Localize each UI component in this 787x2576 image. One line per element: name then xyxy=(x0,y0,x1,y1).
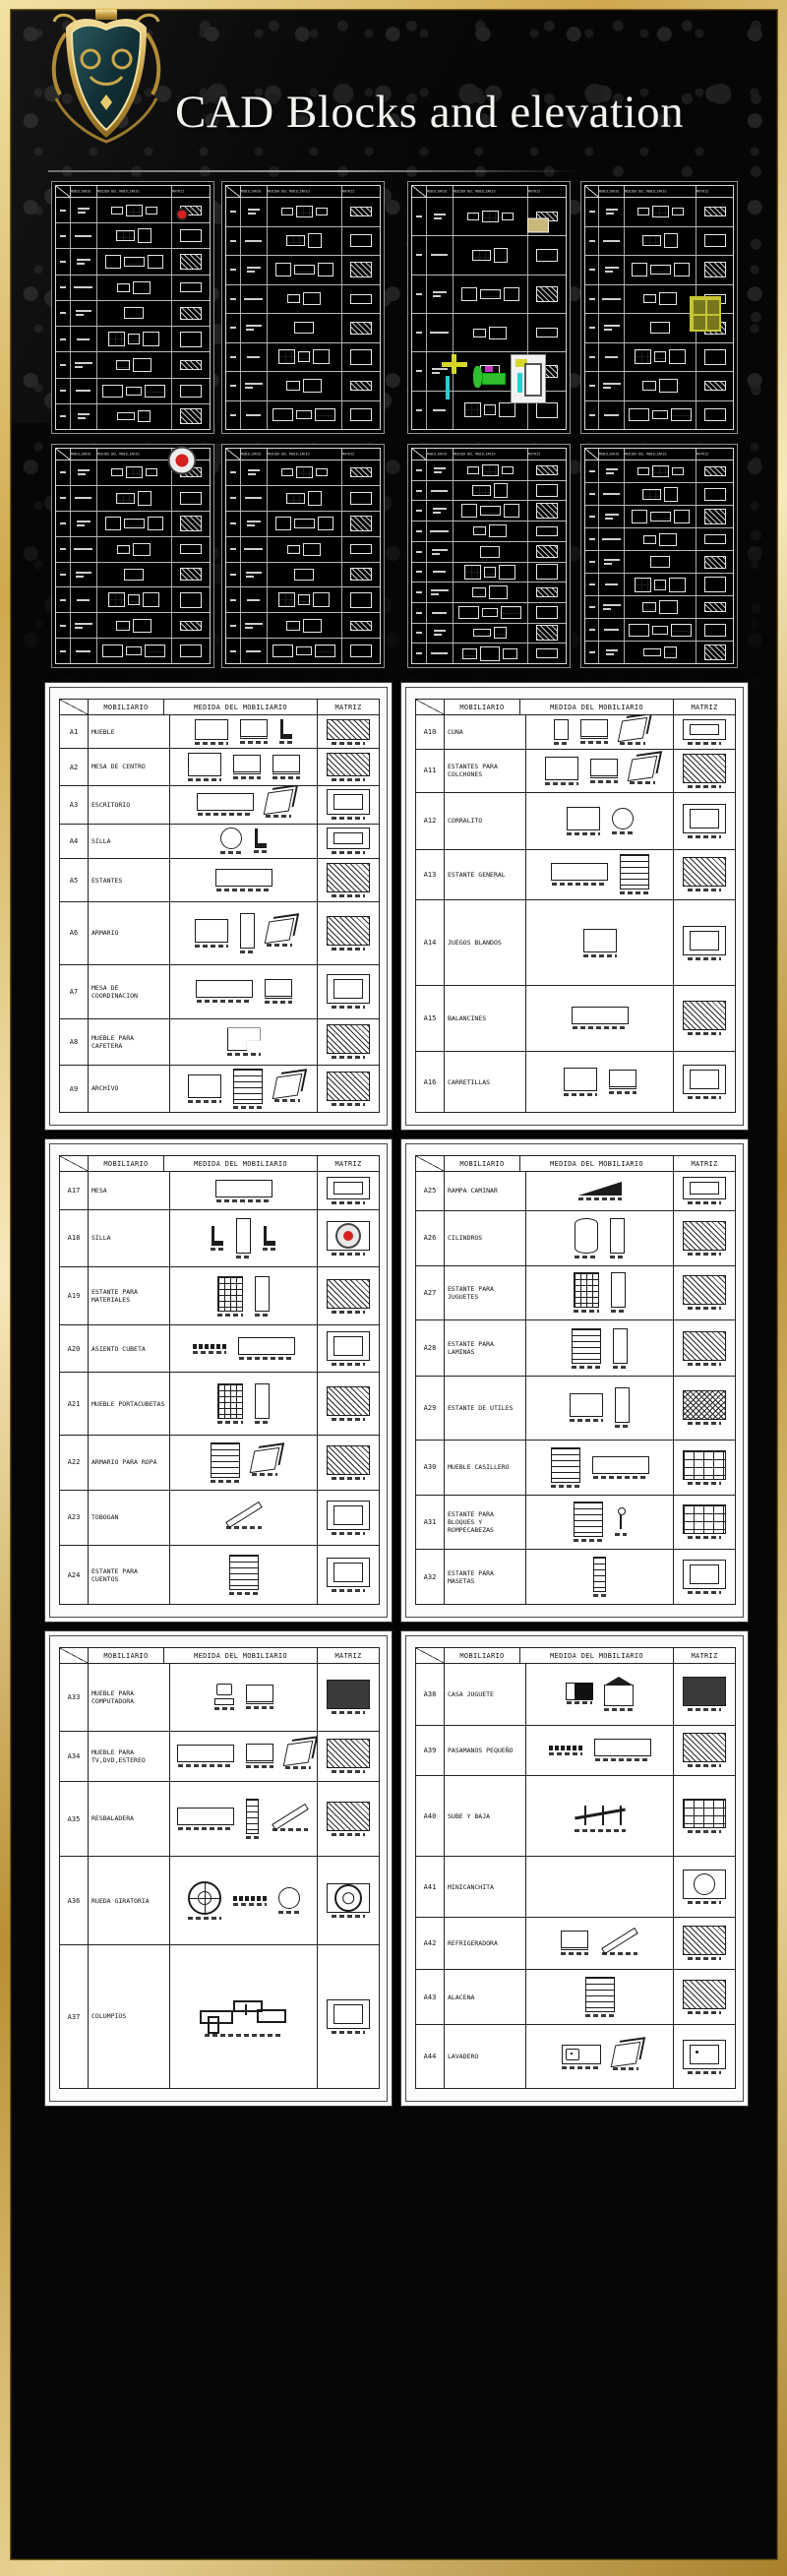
matrix-cell xyxy=(318,902,379,963)
drawing-wide xyxy=(551,863,608,881)
label-mark xyxy=(77,259,91,261)
drawing-front xyxy=(272,755,300,774)
id-mark xyxy=(60,415,66,417)
row-label-cell xyxy=(71,486,97,511)
matrix-drawing xyxy=(350,492,372,505)
matrix-box xyxy=(683,1390,726,1420)
furniture-drawing xyxy=(461,287,477,301)
matrix-cell xyxy=(528,563,566,583)
row-label: SILLA xyxy=(89,825,170,858)
cad-row xyxy=(226,512,380,537)
matrix-box xyxy=(327,1177,370,1199)
matrix-box xyxy=(683,857,726,887)
row-label-cell xyxy=(427,603,454,623)
furniture-drawing xyxy=(464,565,481,580)
label-mark xyxy=(78,417,86,419)
header-label: MEDIDA DEL MOBILIARIO xyxy=(625,453,666,457)
label-marks xyxy=(75,235,91,237)
dimension-label xyxy=(332,1833,365,1836)
dimension-drawings xyxy=(526,1441,674,1495)
dimension-label xyxy=(188,1917,221,1920)
spec-row: A29ESTANTE DE UTILES xyxy=(416,1377,735,1441)
label-marks xyxy=(244,548,263,550)
drawing-plan xyxy=(188,1074,221,1098)
furniture-drawing xyxy=(211,1442,240,1483)
matrix-drawing xyxy=(683,1504,726,1539)
row-id: A22 xyxy=(60,1436,89,1490)
dimension-drawings xyxy=(170,965,318,1018)
dimension-drawings-cell xyxy=(97,249,172,274)
row-label-cell xyxy=(241,613,268,638)
header-cell: MEDIDA DEL MOBILIARIO xyxy=(625,449,696,460)
furniture-drawing xyxy=(272,644,293,657)
spec-table: MOBILIARIOMEDIDA DEL MOBILIARIOMATRIZA33… xyxy=(59,1647,380,2089)
row-id-cell xyxy=(226,512,241,536)
furniture-drawing xyxy=(196,980,253,1003)
label-marks xyxy=(247,356,260,358)
furniture-drawing xyxy=(272,408,293,421)
dimension-drawings-cell xyxy=(454,542,528,562)
cad-row xyxy=(585,619,733,642)
furniture-drawing xyxy=(564,1068,597,1096)
furniture-drawing xyxy=(195,919,228,948)
label-mark xyxy=(248,213,256,215)
matrix-cell xyxy=(318,1066,379,1112)
row-label: CARRETILLAS xyxy=(445,1052,526,1112)
matrix-box xyxy=(327,863,370,892)
dimension-drawings xyxy=(526,900,674,984)
spec-row: A27ESTANTE PARA JUGUETES xyxy=(416,1266,735,1321)
furniture-drawing xyxy=(637,208,649,215)
furniture-drawing xyxy=(612,808,634,834)
label-mark xyxy=(433,508,447,510)
matrix-cell xyxy=(342,563,380,587)
drawing-cyl xyxy=(575,1218,598,1254)
matrix-cell xyxy=(696,506,733,527)
cad-table-header: MOBILIARIOMEDIDA DEL MOBILIARIOMATRIZ xyxy=(412,186,566,198)
matrix-cell xyxy=(172,486,210,511)
row-id-cell xyxy=(412,392,427,429)
label-mark xyxy=(603,383,621,385)
dimension-label xyxy=(267,944,292,947)
basin xyxy=(566,2049,579,2060)
header-medida: MEDIDA DEL MOBILIARIO xyxy=(164,1648,318,1663)
header-matriz: MATRIZ xyxy=(674,1156,735,1171)
row-id-cell xyxy=(56,327,71,351)
furniture-drawing xyxy=(294,265,315,275)
row-label: ESTANTE PARA LAMINAS xyxy=(445,1320,526,1376)
cad-row xyxy=(226,537,380,563)
furniture-drawing xyxy=(613,2044,638,2070)
row-label-cell xyxy=(71,404,97,429)
row-id: A10 xyxy=(416,715,445,749)
spec-row: A35RESBALADERA xyxy=(60,1782,379,1857)
drawing-iso xyxy=(627,756,657,781)
matrix-cell xyxy=(674,850,735,900)
id-mark xyxy=(416,332,422,334)
id-mark xyxy=(60,650,66,652)
dimension-drawings xyxy=(170,1945,318,2088)
drawing-circle xyxy=(220,828,242,849)
spec-table-header: MOBILIARIOMEDIDA DEL MOBILIARIOMATRIZ xyxy=(60,700,379,715)
drawing-shelf xyxy=(551,1447,580,1483)
id-mark xyxy=(60,471,66,473)
furniture-drawing xyxy=(473,629,491,637)
dot-block xyxy=(257,1896,261,1901)
header-cell: MEDIDA DEL MOBILIARIO xyxy=(97,186,172,197)
header-matriz: MATRIZ xyxy=(318,1648,379,1663)
matrix-cell xyxy=(342,198,380,226)
drawing-tall xyxy=(613,1328,628,1364)
furniture-drawing xyxy=(574,1502,603,1542)
dimension-label xyxy=(193,1351,226,1354)
label-mark xyxy=(606,653,614,655)
matrix-drawing xyxy=(180,568,202,581)
furniture-drawing xyxy=(126,466,143,478)
label-mark xyxy=(246,576,254,578)
drawing-circle xyxy=(278,1887,300,1909)
label-mark xyxy=(604,325,620,327)
row-label-cell xyxy=(241,372,268,400)
row-label-cell xyxy=(599,285,625,314)
matrix-cell xyxy=(172,512,210,536)
matrix-box xyxy=(683,1799,726,1828)
cad-sheet-thumbnail: MOBILIARIOMEDIDA DEL MOBILIARIOMATRIZ xyxy=(580,181,738,434)
header-label: MOBILIARIO xyxy=(427,190,447,194)
id-mark xyxy=(230,414,236,416)
cad-table-header: MOBILIARIOMEDIDA DEL MOBILIARIOMATRIZ xyxy=(226,449,380,460)
dimension-drawings xyxy=(170,1732,318,1781)
furniture-drawing xyxy=(480,506,501,516)
row-label: MUEBLE PARA CAFETERA xyxy=(89,1019,170,1065)
id-mark xyxy=(60,625,66,627)
matrix-drawing xyxy=(350,408,372,421)
label-mark xyxy=(247,271,255,273)
frame-post xyxy=(208,2016,219,2034)
row-id-cell xyxy=(56,613,71,638)
id-mark xyxy=(416,254,422,256)
row-id-cell xyxy=(585,314,599,342)
furniture-drawing xyxy=(654,351,666,362)
id-mark xyxy=(589,516,595,518)
header-label: MEDIDA DEL MOBILIARIO xyxy=(268,453,309,457)
label-mark xyxy=(247,521,261,522)
matrix-drawing xyxy=(180,360,202,370)
cad-row xyxy=(412,563,566,583)
dimension-label xyxy=(551,1485,580,1488)
matrix-drawing xyxy=(180,282,202,292)
drawing-shelf xyxy=(211,1442,240,1478)
inner-rect xyxy=(333,794,363,810)
dimension-label xyxy=(254,850,268,853)
crest-logo xyxy=(46,8,166,163)
label-marks xyxy=(77,521,91,526)
matrix-box xyxy=(683,804,726,833)
spec-row: A41MINICANCHITA xyxy=(416,1857,735,1918)
row-label-cell xyxy=(241,343,268,372)
cad-sheet-thumbnail: MOBILIARIOMEDIDA DEL MOBILIARIOMATRIZ xyxy=(580,444,738,668)
furniture-drawing xyxy=(303,379,322,393)
dimension-drawings xyxy=(170,825,318,858)
matrix-cell xyxy=(318,1782,379,1856)
matrix-drawing xyxy=(536,249,558,262)
label-marks xyxy=(245,240,262,242)
row-label-cell xyxy=(71,327,97,351)
furniture-drawing xyxy=(632,263,647,276)
dimension-drawings xyxy=(526,1320,674,1376)
header-cell: MEDIDA DEL MOBILIARIO xyxy=(454,449,528,460)
id-mark xyxy=(589,561,595,563)
cad-row xyxy=(56,198,210,223)
label-mark xyxy=(76,310,91,312)
furniture-drawing xyxy=(145,385,165,398)
row-id: A33 xyxy=(60,1664,89,1731)
furniture-drawing xyxy=(650,512,671,521)
header-cell: MOBILIARIO xyxy=(427,449,454,460)
matrix-drawing xyxy=(327,1739,370,1773)
matrix-drawing xyxy=(683,1390,726,1425)
furniture-drawing xyxy=(281,468,293,476)
furniture-drawing xyxy=(652,626,668,635)
drawing-iso xyxy=(282,1741,313,1766)
header-mobiliario: MOBILIARIO xyxy=(445,1156,520,1171)
dimension-drawings-cell xyxy=(454,481,528,501)
inner-rect xyxy=(333,1336,363,1356)
matrix-drawing xyxy=(350,621,372,631)
dimension-label xyxy=(688,889,721,891)
header-cell: MEDIDA DEL MOBILIARIO xyxy=(268,449,342,460)
row-id: A18 xyxy=(60,1210,89,1266)
spec-row: A38CASA JUGUETE xyxy=(416,1664,735,1726)
matrix-drawing xyxy=(683,1450,726,1485)
label-mark xyxy=(433,512,441,514)
inner-rect xyxy=(690,1070,719,1089)
id-mark xyxy=(230,599,236,601)
drawing-sink xyxy=(562,2045,601,2064)
spec-table: MOBILIARIOMEDIDA DEL MOBILIARIOMATRIZA17… xyxy=(59,1155,380,1605)
furniture-drawing xyxy=(128,594,140,605)
green-bar xyxy=(483,374,505,384)
header-label: MEDIDA DEL MOBILIARIO xyxy=(97,190,139,194)
label-marks xyxy=(77,259,91,265)
dimension-label xyxy=(205,2034,283,2037)
row-label: MUEBLE PARA COMPUTADORA xyxy=(89,1664,170,1731)
furniture-drawing xyxy=(629,624,649,637)
dimension-label xyxy=(332,1589,365,1592)
matrix-cell xyxy=(696,198,733,226)
drawing-front xyxy=(246,1744,273,1763)
furniture-drawing xyxy=(464,402,481,417)
header-label: MEDIDA DEL MOBILIARIO xyxy=(625,190,666,194)
furniture-drawing xyxy=(117,283,130,292)
drawing-seesaw xyxy=(573,1800,628,1827)
matrix-box xyxy=(327,916,370,946)
drawing-iso xyxy=(272,1073,302,1099)
dimension-drawings-cell xyxy=(268,613,342,638)
header-cell: MOBILIARIO xyxy=(71,186,97,197)
drawing-tall xyxy=(615,1387,630,1423)
matrix-cell xyxy=(674,1211,735,1265)
id-mark xyxy=(60,548,66,550)
furniture-drawing xyxy=(271,1808,310,1831)
furniture-drawing xyxy=(146,207,157,215)
dimension-drawings xyxy=(170,902,318,963)
dimension-label xyxy=(611,1310,626,1313)
corner-cell xyxy=(60,700,89,714)
spec-sheet: MOBILIARIOMEDIDA DEL MOBILIARIOMATRIZA1M… xyxy=(44,682,393,1131)
matrix-cell xyxy=(696,574,733,595)
row-label-cell xyxy=(427,460,454,480)
drawing-plan xyxy=(545,757,578,780)
spec-sheet: MOBILIARIOMEDIDA DEL MOBILIARIOMATRIZA38… xyxy=(400,1630,749,2107)
spec-row: A21MUEBLE PORTACUBETAS xyxy=(60,1373,379,1436)
spec-table: MOBILIARIOMEDIDA DEL MOBILIARIOMATRIZA10… xyxy=(415,699,736,1113)
header-medida: MEDIDA DEL MOBILIARIO xyxy=(520,1156,674,1171)
furniture-drawing xyxy=(600,1932,639,1955)
drawing-iso xyxy=(618,717,647,742)
row-id-cell xyxy=(412,624,427,644)
furniture-drawing xyxy=(313,349,330,364)
dimension-label xyxy=(593,1594,606,1597)
id-mark xyxy=(60,574,66,576)
spec-row: A5ESTANTES xyxy=(60,859,379,902)
row-label: COLUMPIOS xyxy=(89,1945,170,2088)
corner-cell xyxy=(416,700,445,714)
matrix-drawing xyxy=(704,488,726,501)
matrix-cell xyxy=(342,460,380,485)
cad-row xyxy=(56,563,210,588)
cad-table: MOBILIARIOMEDIDA DEL MOBILIARIOMATRIZ xyxy=(584,448,734,664)
cyan-mark xyxy=(517,373,522,393)
dimension-drawings xyxy=(526,1496,674,1550)
matrix-cell xyxy=(674,750,735,793)
matrix-drawing xyxy=(327,1177,370,1204)
dimension-label xyxy=(332,894,365,897)
matrix-cell xyxy=(318,1325,379,1372)
dimension-label xyxy=(688,1482,721,1485)
colored-playground xyxy=(440,354,546,403)
matrix-drawing xyxy=(683,1870,726,1904)
dimension-drawings xyxy=(170,749,318,784)
label-marks xyxy=(76,310,91,316)
matrix-drawing xyxy=(683,804,726,838)
dimension-drawings xyxy=(170,1267,318,1325)
furniture-drawing xyxy=(111,207,123,215)
label-mark xyxy=(74,548,92,550)
id-mark xyxy=(60,599,66,601)
matrix-drawing xyxy=(683,926,726,960)
dimension-label xyxy=(610,1256,625,1258)
row-id-cell xyxy=(412,501,427,521)
spec-row: A14JUEGOS BLANDOS xyxy=(416,900,735,985)
furniture-drawing xyxy=(613,1328,628,1369)
matrix-drawing xyxy=(704,349,726,365)
matrix-cell xyxy=(696,460,733,482)
matrix-box xyxy=(683,1926,726,1955)
accent-window xyxy=(690,296,721,332)
matrix-cell xyxy=(674,1970,735,2025)
furniture-drawing xyxy=(489,327,507,339)
furniture-drawing xyxy=(303,543,321,556)
furniture-drawing xyxy=(664,233,678,248)
furniture-drawing xyxy=(494,248,508,263)
furniture-drawing xyxy=(197,793,254,816)
id-mark xyxy=(589,327,595,329)
furniture-drawing xyxy=(664,487,678,502)
spec-row: A31ESTANTE PARA BLOQUES Y ROMPECABEZAS xyxy=(416,1496,735,1551)
dimension-drawings xyxy=(170,1664,318,1731)
matrix-cell xyxy=(318,1019,379,1065)
dimension-label xyxy=(572,1366,601,1369)
furniture-drawing xyxy=(654,580,666,590)
label-marks xyxy=(74,286,92,288)
matrix-cell xyxy=(696,642,733,663)
cad-row xyxy=(56,486,210,512)
label-mark xyxy=(75,235,91,237)
id-mark xyxy=(60,364,66,366)
dimension-drawings-cell xyxy=(97,327,172,351)
row-id-cell xyxy=(412,644,427,663)
header-medida: MEDIDA DEL MOBILIARIO xyxy=(164,700,318,714)
id-mark xyxy=(60,522,66,524)
cad-row xyxy=(226,285,380,315)
red-target xyxy=(170,448,195,472)
row-label: ARMARIO xyxy=(89,902,170,963)
furniture-drawing xyxy=(620,719,645,745)
row-id-cell xyxy=(56,276,71,300)
cad-thumbnail-row-1: MOBILIARIOMEDIDA DEL MOBILIARIOMATRIZMOB… xyxy=(11,181,777,434)
row-id: A27 xyxy=(416,1266,445,1320)
matrix-cell xyxy=(172,613,210,638)
drawing-front xyxy=(265,979,292,999)
dimension-drawings xyxy=(526,850,674,900)
matrix-drawing xyxy=(683,2040,726,2074)
matrix-cell xyxy=(318,1172,379,1209)
label-marks xyxy=(432,549,448,555)
matrix-cell xyxy=(696,483,733,505)
dimension-drawings xyxy=(526,1664,674,1725)
cad-sheet-thumbnail: MOBILIARIOMEDIDA DEL MOBILIARIOMATRIZ xyxy=(51,181,214,434)
row-label-cell xyxy=(241,314,268,342)
drain-dot xyxy=(696,2051,698,2054)
matrix-drawing xyxy=(350,234,372,247)
drawing-shelf xyxy=(574,1502,603,1537)
dot-block xyxy=(216,1344,220,1349)
label-marks xyxy=(430,332,449,334)
dimension-drawings-cell xyxy=(454,276,528,313)
matrix-drawing xyxy=(180,544,202,554)
matrix-drawing xyxy=(683,1065,726,1099)
furniture-drawing xyxy=(272,755,300,779)
dimension-drawings xyxy=(170,786,318,824)
row-label: CILINDROS xyxy=(445,1211,526,1265)
row-id-cell xyxy=(585,528,599,550)
furniture-drawing xyxy=(133,358,151,372)
spec-row: A8MUEBLE PARA CAFETERA xyxy=(60,1019,379,1066)
drawing-wide xyxy=(177,1745,234,1762)
drawing-iso xyxy=(263,789,293,815)
furniture-drawing xyxy=(567,1684,592,1704)
dimension-label xyxy=(332,1103,365,1106)
matrix-drawing xyxy=(704,509,726,524)
matrix-cell xyxy=(696,619,733,641)
matrix-drawing xyxy=(704,408,726,421)
furniture-drawing xyxy=(177,1745,234,1767)
spec-sheet: MOBILIARIOMEDIDA DEL MOBILIARIOMATRIZA25… xyxy=(400,1138,749,1623)
dimension-drawings-cell xyxy=(97,486,172,511)
row-label-cell xyxy=(71,223,97,248)
row-label-cell xyxy=(427,583,454,602)
